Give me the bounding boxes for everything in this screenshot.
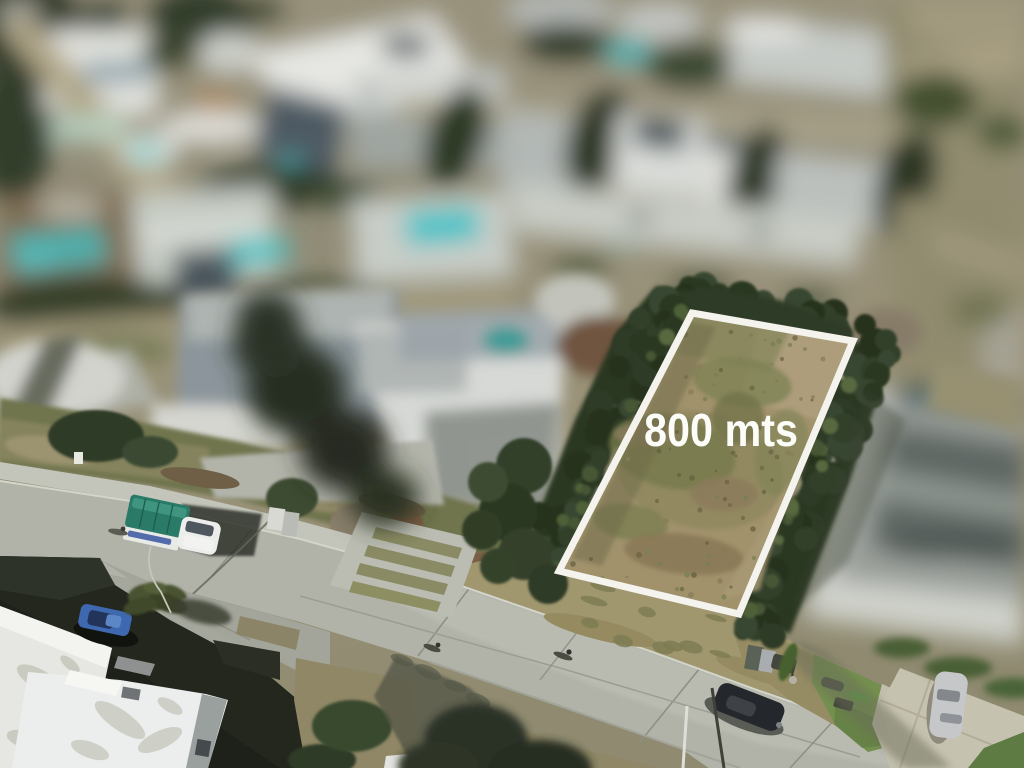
svg-text:800 mts: 800 mts (644, 404, 798, 456)
